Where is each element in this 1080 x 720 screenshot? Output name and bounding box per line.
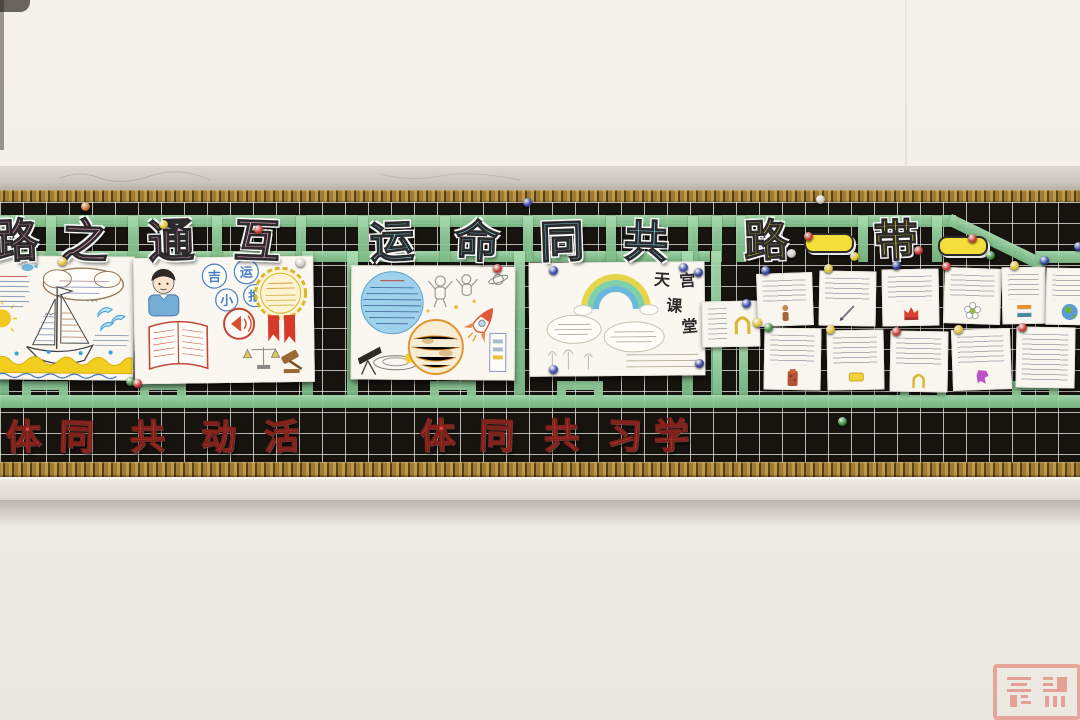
gold-frame-bottom (0, 462, 1080, 477)
blackboard-grid (0, 202, 1080, 462)
pencil-scribble (50, 166, 550, 188)
ledge-shadow (0, 499, 1080, 527)
wall-seam (905, 0, 907, 166)
chalk-ledge (0, 477, 1080, 501)
watermark-seal-icon (993, 664, 1080, 720)
edge-shadow (0, 0, 4, 150)
corner-shadow (0, 0, 30, 12)
